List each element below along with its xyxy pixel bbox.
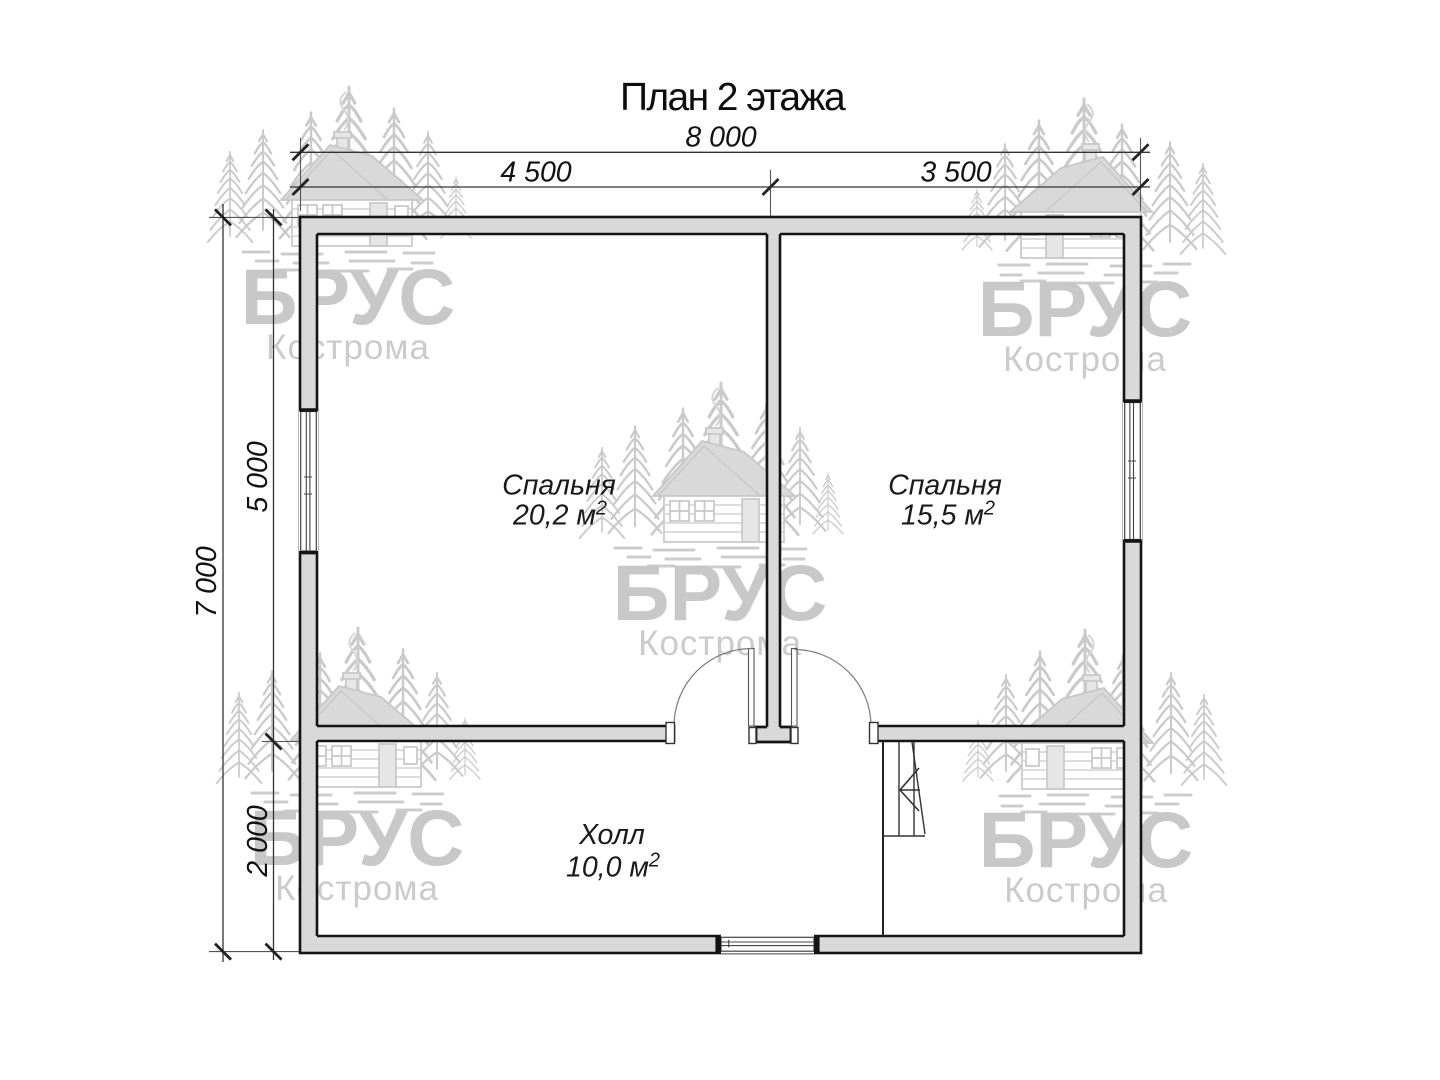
svg-text:План 2 этажа: План 2 этажа	[620, 76, 846, 119]
svg-text:2 000: 2 000	[242, 805, 274, 877]
svg-text:4 500: 4 500	[500, 157, 571, 189]
svg-text:8 000: 8 000	[685, 122, 756, 154]
svg-text:3 500: 3 500	[920, 157, 991, 189]
svg-text:7 000: 7 000	[191, 546, 223, 617]
svg-text:20,2 м2: 20,2 м2	[512, 498, 607, 532]
svg-text:15,5 м2: 15,5 м2	[901, 498, 995, 532]
svg-text:Холл: Холл	[578, 819, 645, 851]
svg-text:10,0 м2: 10,0 м2	[566, 850, 660, 884]
svg-text:5 000: 5 000	[242, 441, 274, 512]
